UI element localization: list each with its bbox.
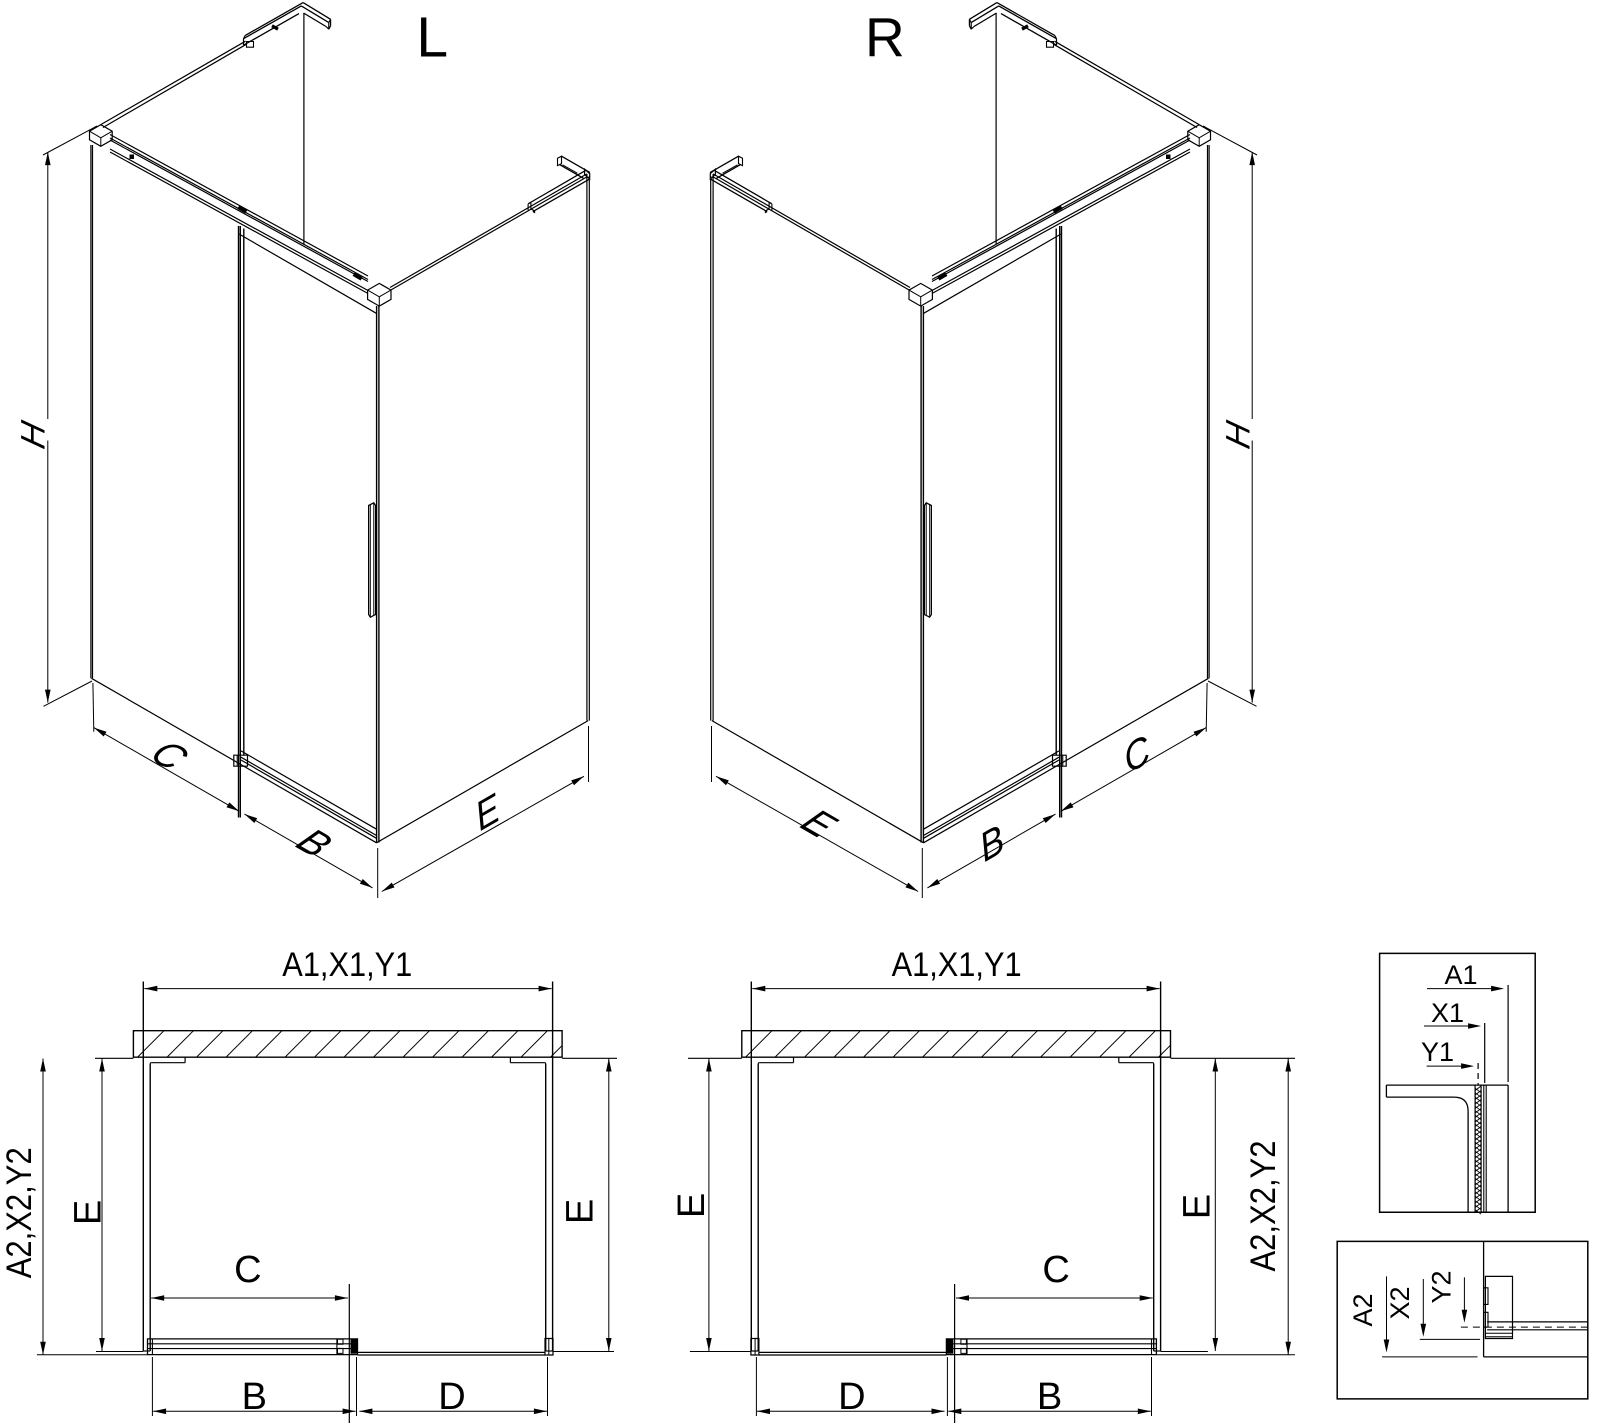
svg-text:A1: A1 [1444,960,1477,990]
svg-text:B: B [242,1376,267,1418]
svg-text:E: E [68,1200,110,1225]
svg-text:E: E [560,1199,602,1224]
svg-text:X2: X2 [1385,1286,1415,1319]
svg-text:A1,X1,Y1: A1,X1,Y1 [282,946,412,984]
svg-text:E: E [1177,1194,1219,1219]
svg-text:Y2: Y2 [1426,1270,1456,1303]
svg-text:R: R [865,6,905,68]
svg-text:D: D [838,1376,865,1418]
svg-text:Y1: Y1 [1421,1037,1454,1067]
svg-text:C: C [234,1249,261,1291]
svg-text:A1,X1,Y1: A1,X1,Y1 [892,946,1022,984]
svg-text:D: D [438,1376,465,1418]
svg-text:C: C [1042,1249,1069,1291]
svg-text:A2,X2,Y2: A2,X2,Y2 [0,1147,39,1278]
svg-text:E: E [671,1193,713,1218]
svg-text:A2: A2 [1348,1293,1378,1326]
svg-text:L: L [416,6,448,70]
svg-text:A2,X2,Y2: A2,X2,Y2 [1244,1141,1283,1272]
svg-text:X1: X1 [1431,998,1464,1028]
svg-text:B: B [1037,1376,1062,1418]
